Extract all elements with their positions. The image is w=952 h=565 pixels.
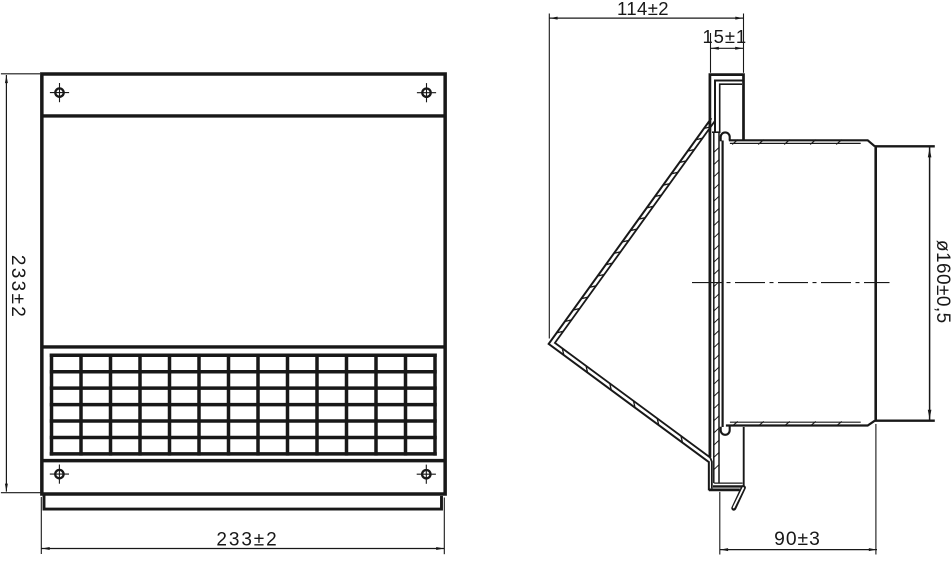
svg-text:ø160±0,5: ø160±0,5 bbox=[932, 240, 952, 324]
svg-text:90±3: 90±3 bbox=[774, 529, 821, 550]
svg-text:233±2: 233±2 bbox=[7, 255, 28, 319]
svg-text:233±2: 233±2 bbox=[216, 530, 278, 551]
svg-text:114±2: 114±2 bbox=[617, 0, 669, 19]
svg-text:15±1: 15±1 bbox=[702, 26, 747, 47]
